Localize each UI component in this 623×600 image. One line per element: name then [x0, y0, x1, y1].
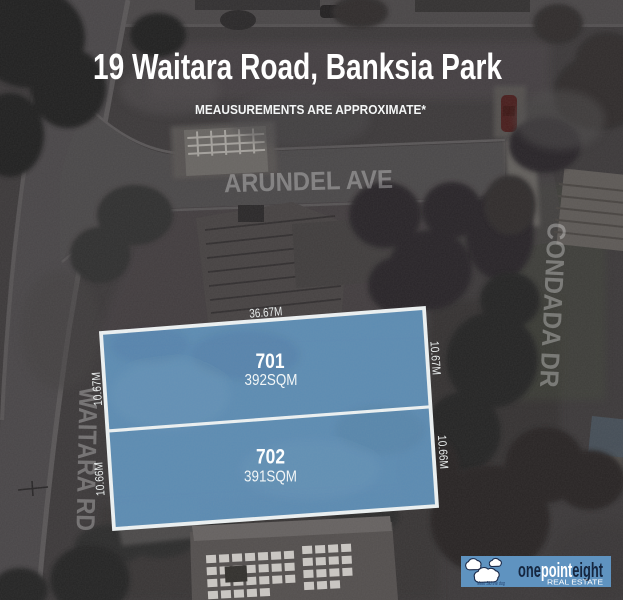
svg-text:10.67M: 10.67M [427, 341, 443, 376]
svg-text:ARUNDEL AVE: ARUNDEL AVE [224, 164, 394, 198]
svg-text:702: 702 [256, 446, 285, 469]
svg-text:19 Waitara Road, Banksia Park: 19 Waitara Road, Banksia Park [93, 46, 503, 87]
svg-text:WAITARA RD: WAITARA RD [70, 387, 103, 532]
svg-text:36.67M: 36.67M [249, 304, 283, 320]
svg-text:MEAUSUREMENTS ARE APPROXIMATE*: MEAUSUREMENTS ARE APPROXIMATE* [195, 103, 426, 117]
svg-text:391SQM: 391SQM [244, 469, 297, 486]
svg-text:701: 701 [256, 350, 285, 373]
svg-text:REAL ESTATE: REAL ESTATE [547, 578, 603, 587]
svg-text:392SQM: 392SQM [245, 372, 298, 389]
svg-text:Meet Sid the dog: Meet Sid the dog [477, 581, 506, 587]
svg-text:10.66M: 10.66M [435, 435, 451, 470]
